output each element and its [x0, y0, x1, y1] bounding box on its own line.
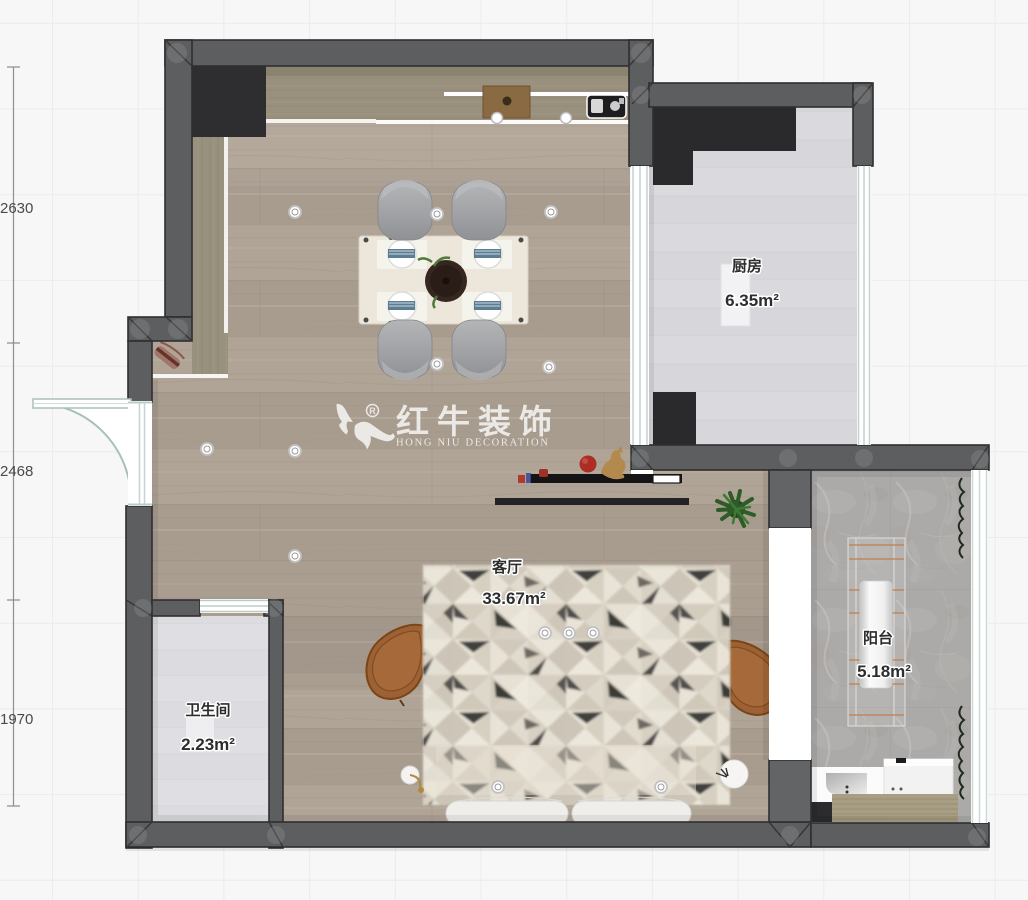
- svg-text:2630: 2630: [0, 200, 33, 217]
- svg-text:阳台: 阳台: [863, 629, 893, 647]
- svg-text:5.18m²: 5.18m²: [857, 662, 911, 681]
- svg-text:6.35m²: 6.35m²: [725, 291, 779, 310]
- svg-text:2.23m²: 2.23m²: [181, 735, 235, 754]
- svg-text:R: R: [369, 406, 376, 416]
- svg-text:HONG NIU DECORATION: HONG NIU DECORATION: [396, 438, 550, 449]
- svg-text:客厅: 客厅: [491, 558, 522, 576]
- svg-text:红牛装饰: 红牛装饰: [396, 403, 560, 440]
- svg-text:1970: 1970: [0, 711, 33, 728]
- svg-text:2468: 2468: [0, 463, 33, 480]
- svg-text:卫生间: 卫生间: [185, 701, 230, 719]
- svg-text:33.67m²: 33.67m²: [482, 589, 546, 608]
- svg-text:厨房: 厨房: [732, 257, 762, 275]
